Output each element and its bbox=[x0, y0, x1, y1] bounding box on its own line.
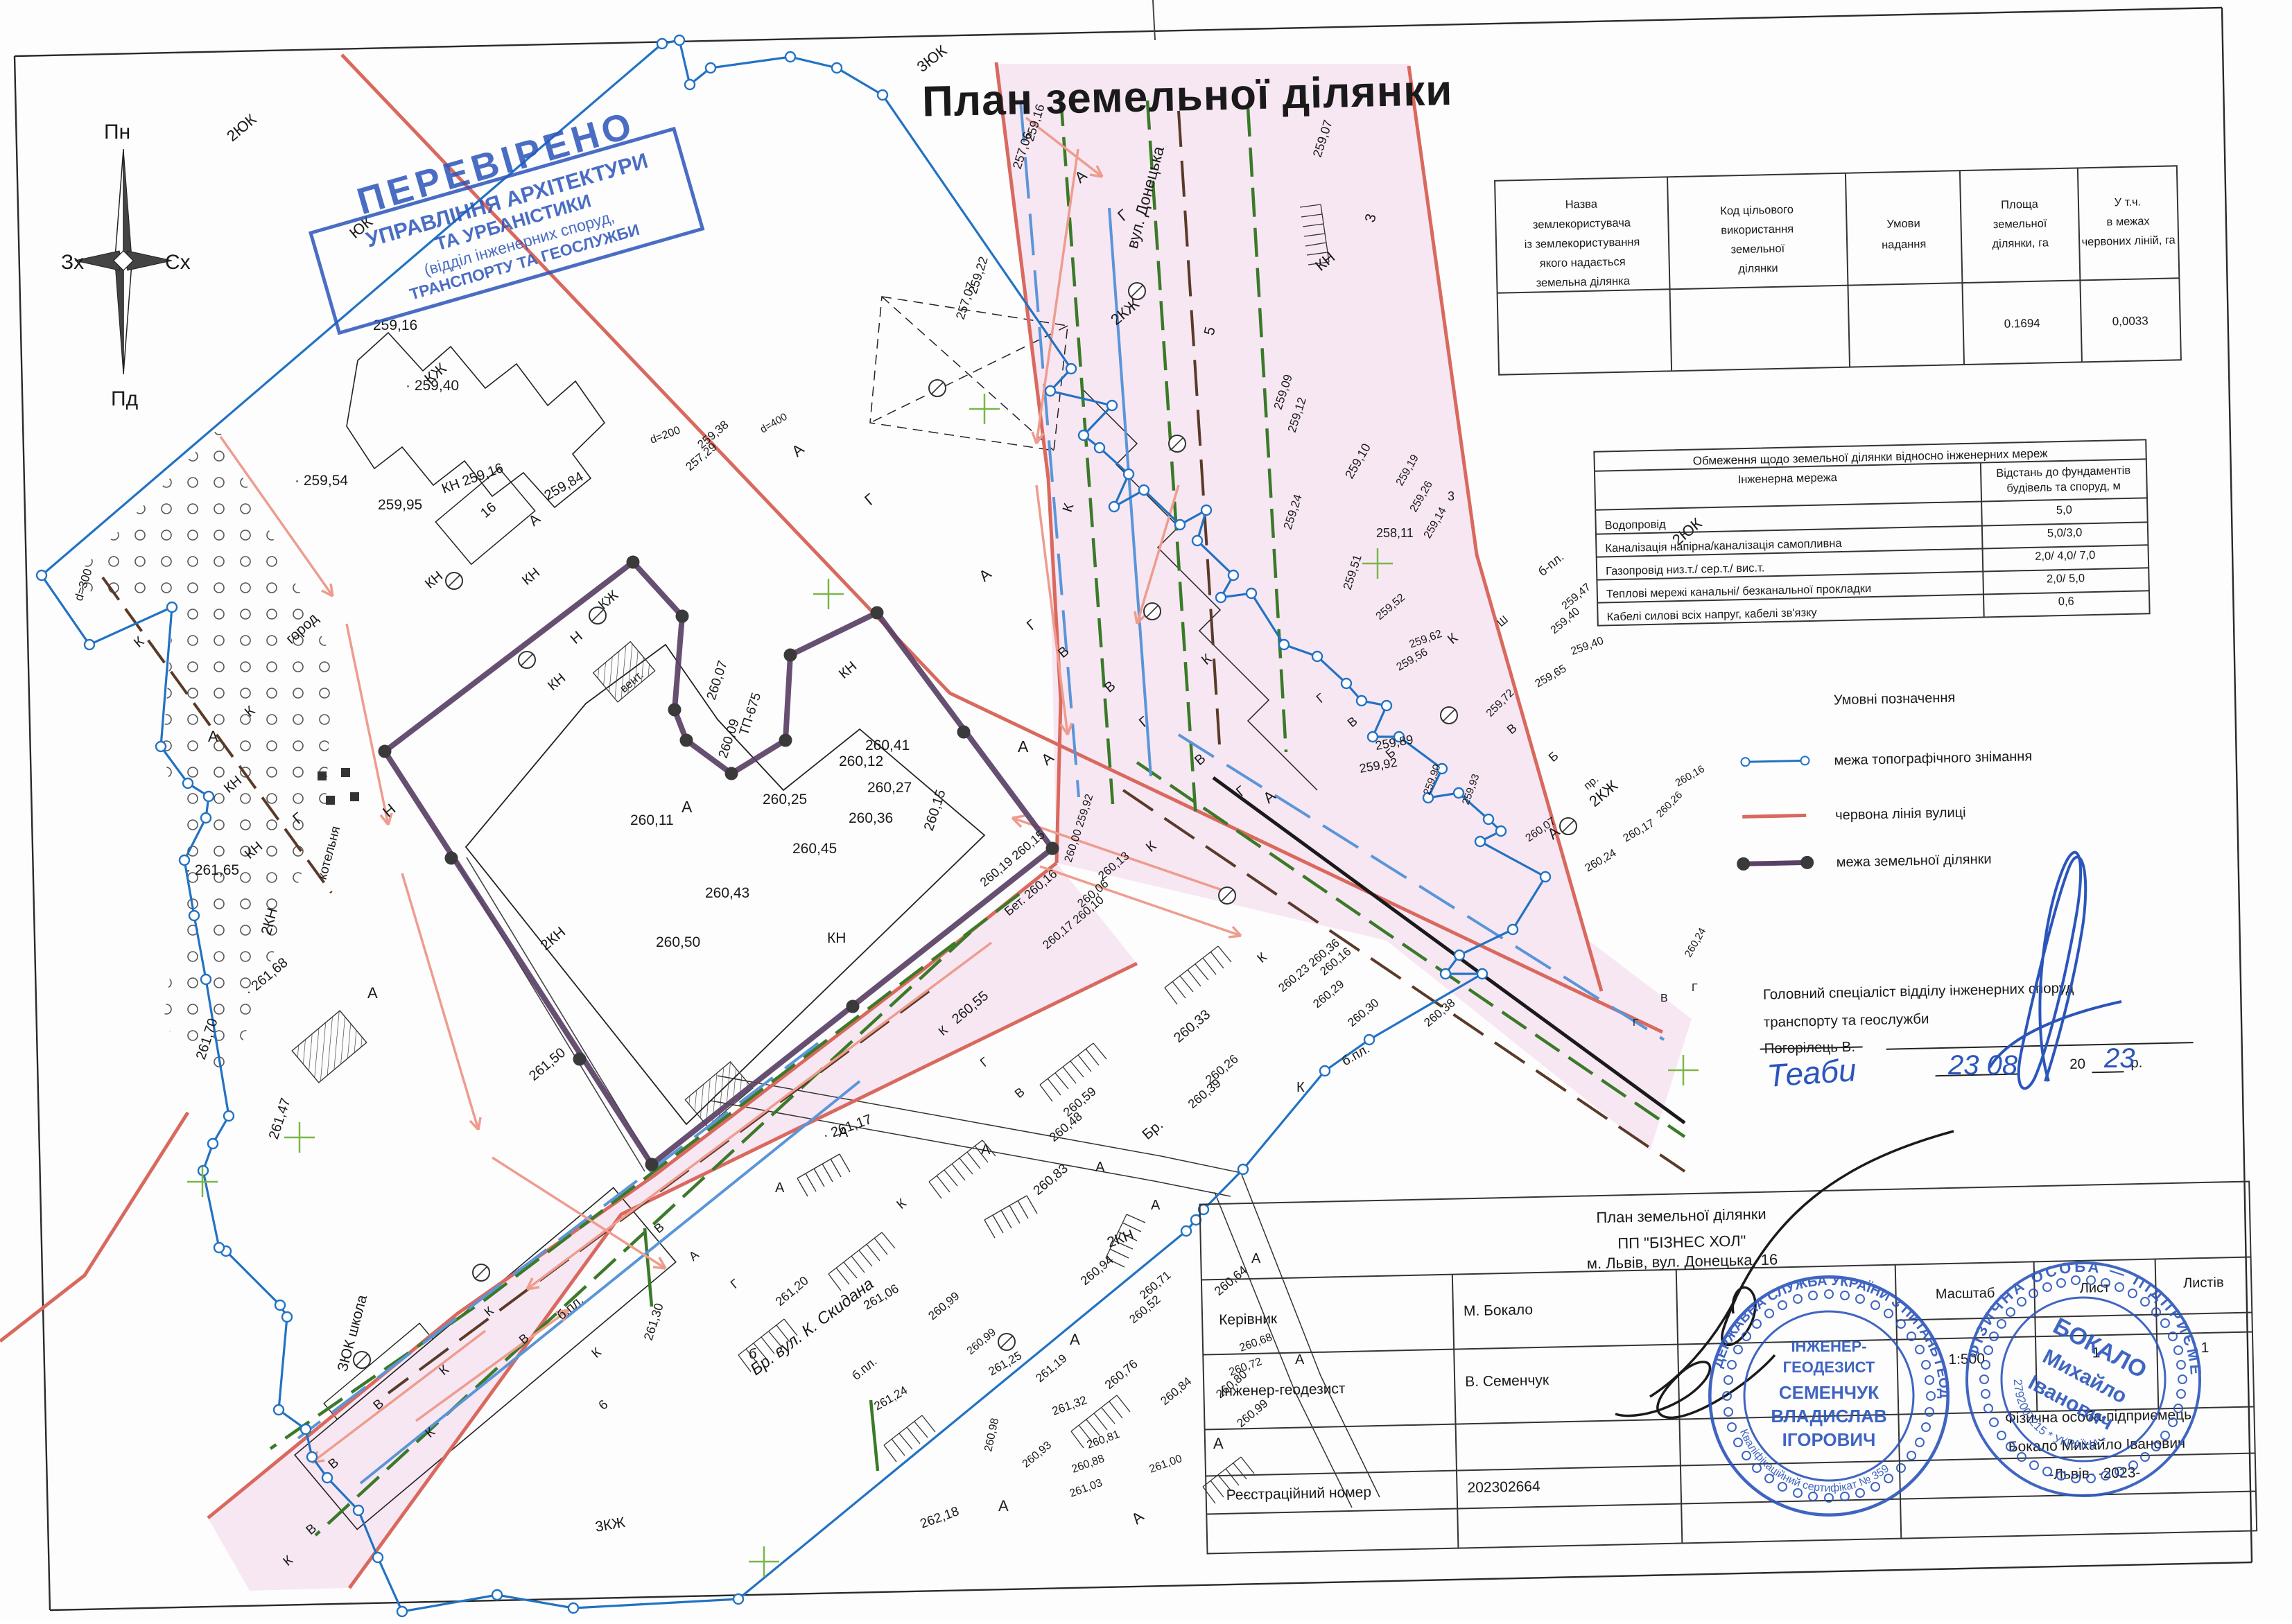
svg-text:0,0033: 0,0033 bbox=[2112, 314, 2148, 328]
svg-text:· 259,54: · 259,54 bbox=[295, 473, 348, 489]
svg-text:М. Бокало: М. Бокало bbox=[1464, 1302, 1534, 1319]
svg-text:260,36: 260,36 bbox=[849, 810, 893, 826]
svg-text:Умови: Умови bbox=[1886, 217, 1920, 230]
svg-text:2,0/ 4,0/ 7,0: 2,0/ 4,0/ 7,0 bbox=[2035, 549, 2096, 563]
svg-text:будівель та споруд, м: будівель та споруд, м bbox=[2006, 480, 2121, 495]
svg-text:В. Семенчук: В. Семенчук bbox=[1465, 1372, 1549, 1390]
svg-text:259,95: 259,95 bbox=[378, 497, 422, 513]
svg-text:земельної: земельної bbox=[1993, 217, 2047, 231]
svg-text:260,41: 260,41 bbox=[865, 737, 910, 753]
svg-text:Пд: Пд bbox=[111, 387, 138, 410]
svg-text:ділянки: ділянки bbox=[1738, 262, 1778, 275]
svg-text:Інженерна мережа: Інженерна мережа bbox=[1738, 471, 1838, 486]
svg-text:Водопровід: Водопровід bbox=[1605, 518, 1667, 532]
svg-text:Площа: Площа bbox=[2001, 198, 2039, 211]
svg-text:А: А bbox=[1070, 1331, 1080, 1348]
svg-text:Пн: Пн bbox=[104, 121, 130, 143]
svg-text:План земельної ділянки: План земельної ділянки bbox=[1596, 1205, 1766, 1226]
svg-text:ВЛАДИСЛАВ: ВЛАДИСЛАВ bbox=[1771, 1406, 1886, 1426]
svg-text:2,0/ 5,0: 2,0/ 5,0 bbox=[2047, 572, 2085, 585]
svg-text:А: А bbox=[1018, 737, 1029, 756]
svg-text:А: А bbox=[981, 1142, 991, 1158]
svg-text:ПП "БІЗНЕС ХОЛ": ПП "БІЗНЕС ХОЛ" bbox=[1617, 1232, 1746, 1252]
svg-text:земельної: земельної bbox=[1730, 243, 1785, 256]
svg-text:А: А bbox=[1251, 1251, 1261, 1266]
svg-text:260,43: 260,43 bbox=[705, 885, 749, 901]
svg-text:23 08: 23 08 bbox=[1947, 1050, 2018, 1081]
svg-text:260,45: 260,45 bbox=[792, 841, 837, 857]
svg-text:ГЕОДЕЗИСТ: ГЕОДЕЗИСТ bbox=[1783, 1359, 1875, 1376]
svg-text:А: А bbox=[998, 1497, 1009, 1514]
svg-text:5,0: 5,0 bbox=[2056, 504, 2072, 516]
svg-text:Теаби: Теаби bbox=[1766, 1051, 1857, 1094]
svg-text:в межах: в межах bbox=[2106, 215, 2150, 228]
svg-text:ділянки, га: ділянки, га bbox=[1992, 236, 2049, 250]
svg-text:В: В bbox=[1660, 993, 1668, 1004]
svg-text:· 261,65: · 261,65 bbox=[186, 862, 239, 878]
svg-text:А: А bbox=[1295, 1352, 1305, 1368]
svg-text:260,50: 260,50 bbox=[656, 934, 700, 950]
svg-text:5,0/3,0: 5,0/3,0 bbox=[2047, 526, 2083, 539]
svg-text:Реєстраційний номер: Реєстраційний номер bbox=[1226, 1484, 1371, 1503]
svg-text:Г: Г bbox=[1633, 1017, 1638, 1029]
svg-text:червона лінія вулиці: червона лінія вулиці bbox=[1835, 805, 1966, 823]
svg-text:червоних ліній, га: червоних ліній, га bbox=[2081, 234, 2176, 248]
svg-text:Керівник: Керівник bbox=[1219, 1311, 1278, 1328]
svg-text:23: 23 bbox=[2103, 1043, 2135, 1074]
svg-text:Умовні позначення: Умовні позначення bbox=[1834, 690, 1956, 708]
svg-text:Масштаб: Масштаб bbox=[1936, 1286, 1995, 1302]
svg-text:К: К bbox=[1296, 1080, 1305, 1095]
svg-text:А: А bbox=[208, 728, 218, 745]
svg-text:Назва: Назва bbox=[1565, 198, 1598, 211]
svg-text:1: 1 bbox=[2200, 1340, 2209, 1356]
svg-text:СЕМЕНЧУК: СЕМЕНЧУК bbox=[1779, 1382, 1879, 1403]
svg-text:3: 3 bbox=[1448, 489, 1455, 503]
svg-text:0.1694: 0.1694 bbox=[2004, 317, 2040, 331]
svg-text:Листів: Листів bbox=[2183, 1275, 2224, 1291]
svg-text:Г: Г bbox=[1692, 982, 1698, 994]
svg-text:260,11: 260,11 bbox=[630, 812, 674, 828]
svg-text:землекористувача: землекористувача bbox=[1533, 216, 1631, 231]
svg-text:А: А bbox=[681, 798, 693, 816]
svg-text:258,11: 258,11 bbox=[1376, 526, 1414, 540]
svg-text:Зх: Зх bbox=[61, 251, 84, 274]
svg-text:А: А bbox=[839, 1125, 849, 1140]
svg-text:202302664: 202302664 bbox=[1467, 1478, 1540, 1496]
svg-text:0,6: 0,6 bbox=[2058, 595, 2074, 608]
svg-text:А: А bbox=[367, 984, 378, 1002]
svg-text:КН: КН bbox=[827, 930, 846, 946]
svg-text:У т.ч.: У т.ч. bbox=[2114, 195, 2141, 209]
svg-text:надання: надання bbox=[1882, 238, 1927, 251]
svg-text:Інженер-геодезист: Інженер-геодезист bbox=[1220, 1381, 1346, 1399]
svg-text:Сх: Сх bbox=[165, 251, 191, 274]
svg-text:А: А bbox=[775, 1180, 785, 1196]
svg-text:А: А bbox=[1151, 1198, 1161, 1213]
svg-text:із землекористування: із землекористування bbox=[1525, 236, 1640, 251]
svg-text:260,27: 260,27 bbox=[867, 780, 912, 796]
svg-text:б: б bbox=[749, 1347, 756, 1362]
svg-text:якого надається: якого надається bbox=[1540, 256, 1626, 270]
svg-text:20: 20 bbox=[2069, 1056, 2085, 1072]
svg-text:260,25: 260,25 bbox=[763, 792, 807, 807]
svg-text:А: А bbox=[1213, 1435, 1224, 1452]
svg-text:· 259,40: · 259,40 bbox=[406, 378, 459, 394]
svg-text:використання: використання bbox=[1721, 222, 1794, 236]
svg-text:ІНЖЕНЕР-: ІНЖЕНЕР- bbox=[1791, 1338, 1866, 1355]
svg-text:земельна ділянка: земельна ділянка bbox=[1536, 275, 1631, 290]
svg-text:Код цільового: Код цільового bbox=[1720, 203, 1794, 217]
svg-text:ІГОРОВИЧ: ІГОРОВИЧ bbox=[1782, 1429, 1876, 1450]
svg-text:А: А bbox=[1095, 1160, 1105, 1175]
svg-text:260,12: 260,12 bbox=[839, 753, 883, 769]
